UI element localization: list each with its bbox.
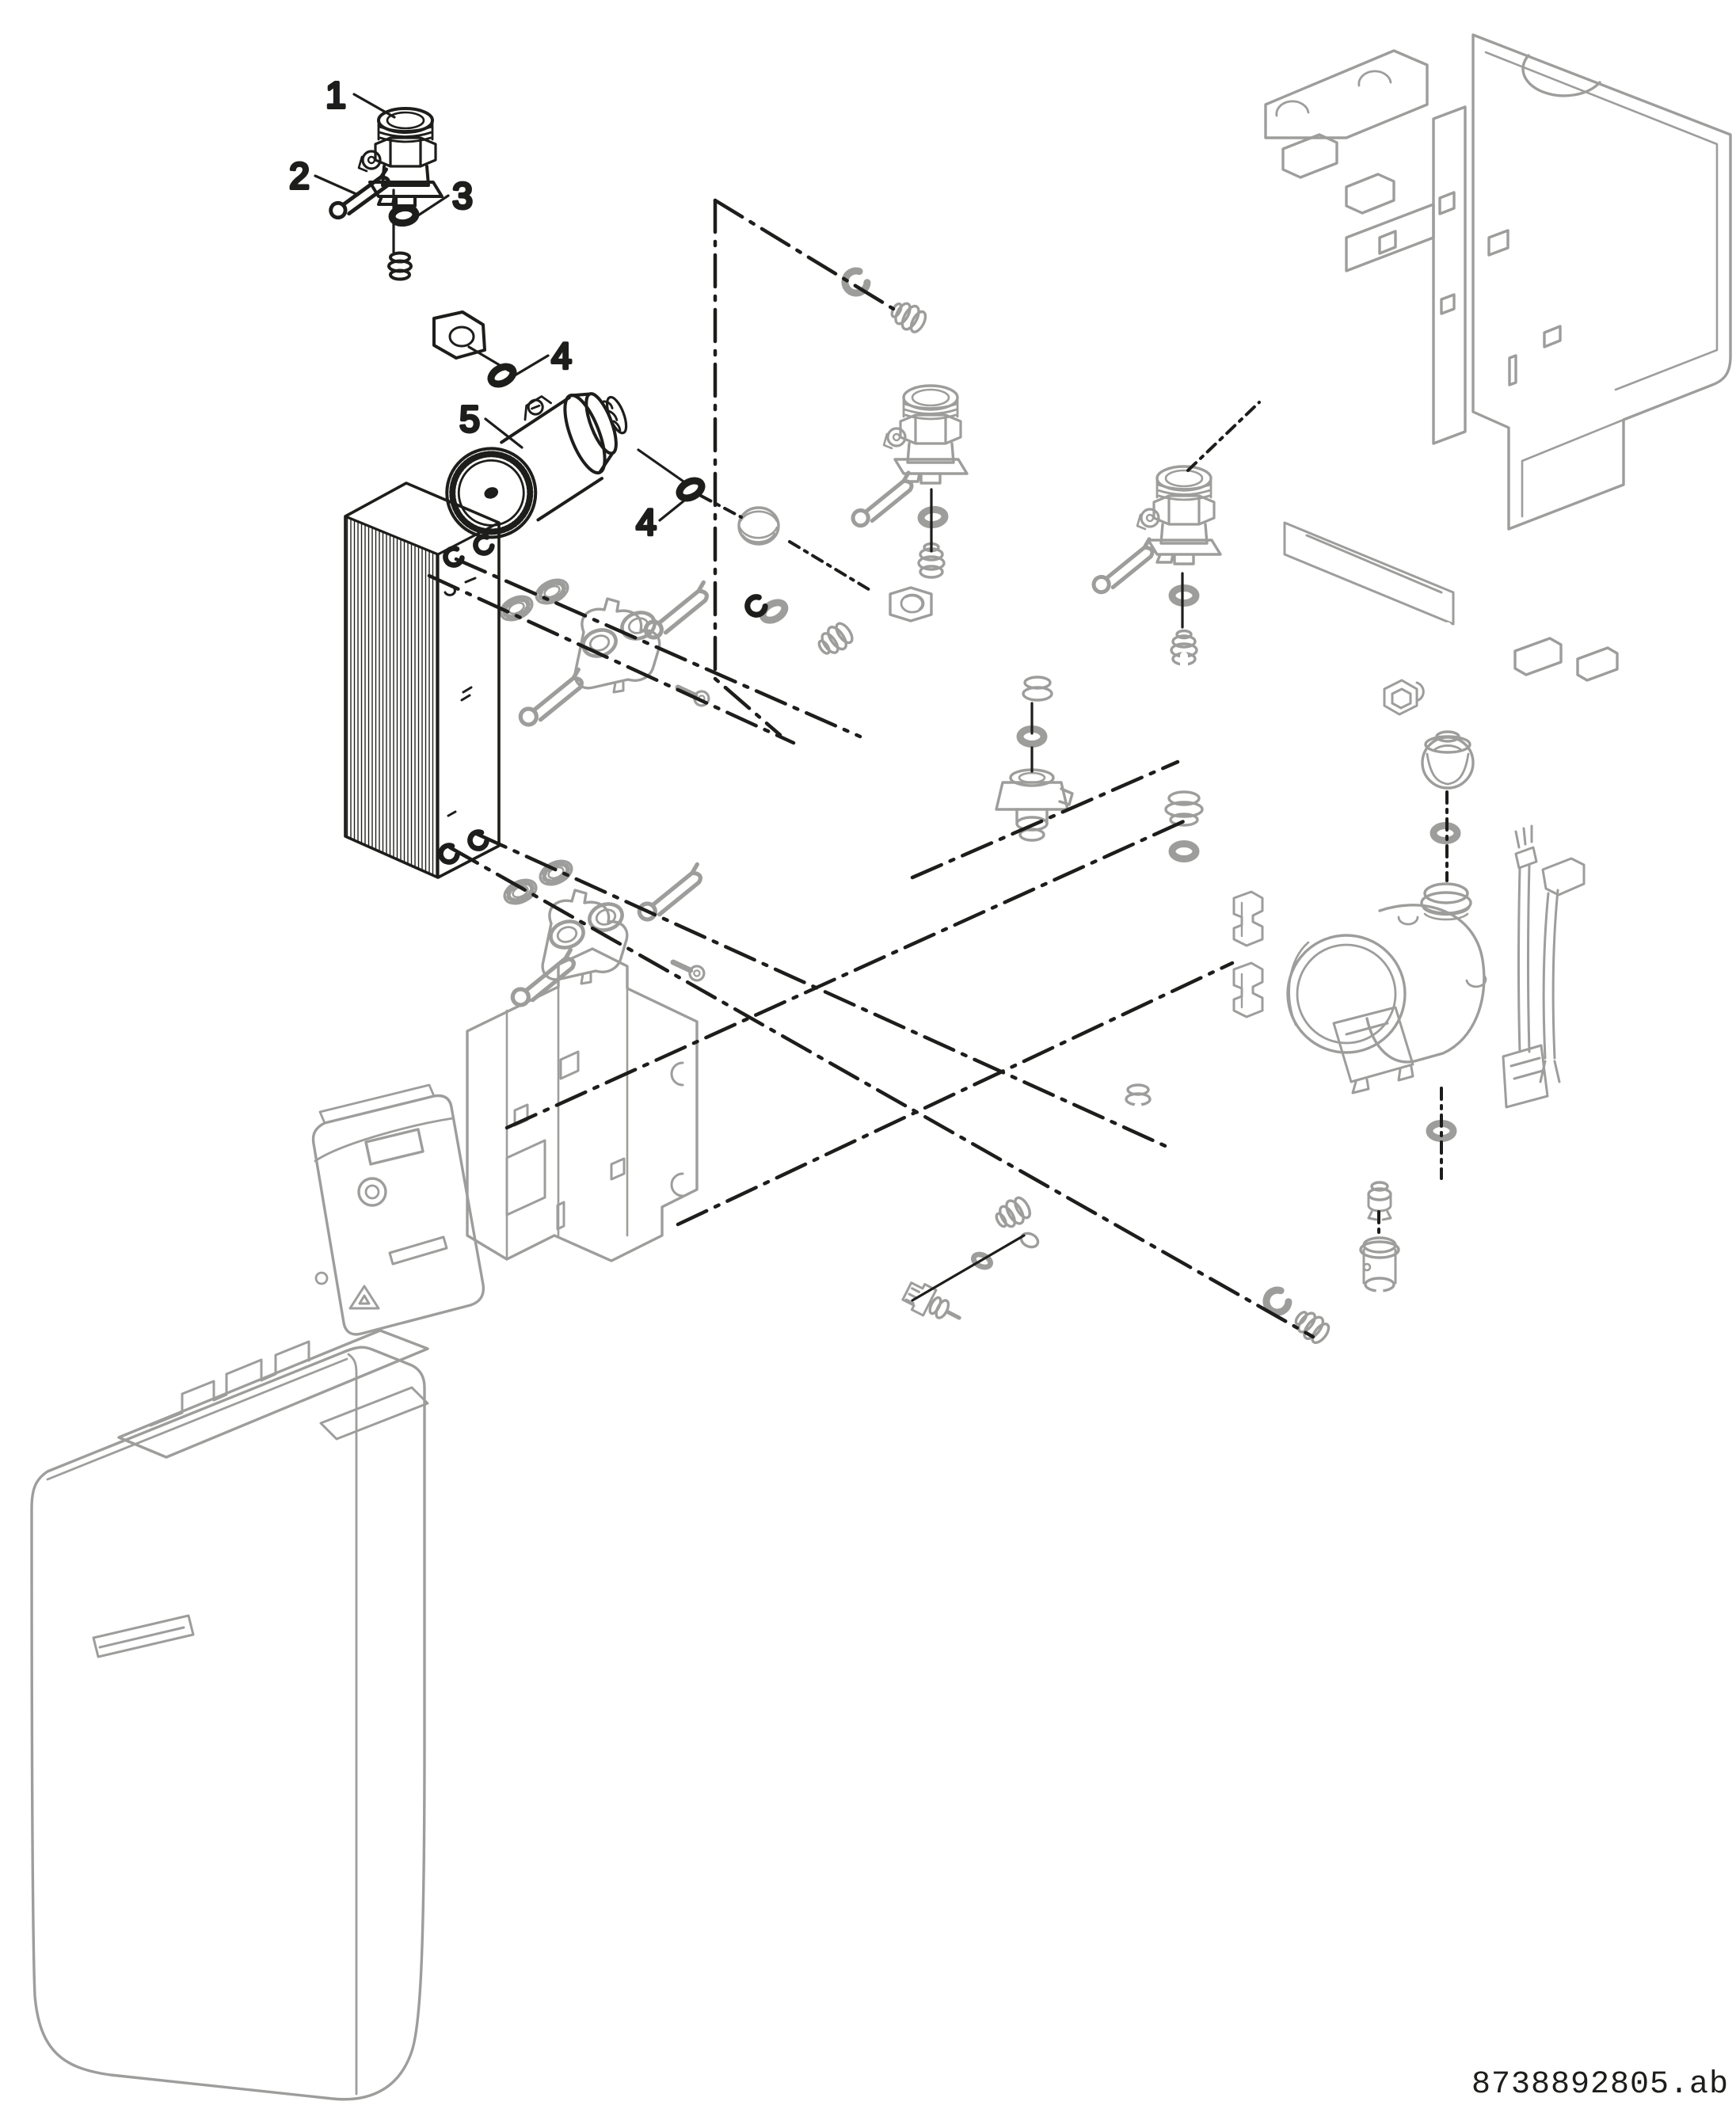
- service-valve-fitting: [359, 108, 442, 206]
- oring-valve-center: [920, 508, 946, 526]
- callout-1-label: 1: [325, 74, 346, 116]
- sealing-washer: [391, 207, 417, 225]
- callout-2-label: 2: [289, 155, 310, 196]
- control-unit: [314, 1085, 484, 1334]
- pipe-clip-b: [1234, 963, 1262, 1017]
- pipe-valve-center: [884, 386, 967, 483]
- hydraulic-manifold-upper: [575, 599, 660, 692]
- pump-cable-sensor: [1503, 826, 1548, 1107]
- callout-4a-label: 4: [551, 335, 572, 376]
- cable-retainer-clip: [1384, 680, 1423, 714]
- return-pipe-top: [888, 298, 1052, 700]
- oring-pipe-right: [1172, 844, 1196, 859]
- spring-clip-row2-right: [631, 864, 708, 921]
- spring-clip-row1-left: [512, 669, 589, 726]
- callout-4b-label: 4: [636, 501, 657, 542]
- doc-number: 8738892805.ab: [1471, 2067, 1729, 2103]
- temperature-sensor: [900, 1278, 965, 1330]
- assembly-centerlines: [429, 200, 1447, 1337]
- flange-adapter: [996, 770, 1072, 840]
- gasket-row1-b: [532, 575, 571, 607]
- hydraulic-manifold-lower: [542, 890, 627, 984]
- retaining-clip: [325, 169, 394, 219]
- pump-inlet-pipe: [1422, 626, 1473, 788]
- gasket-row2-b: [536, 856, 575, 889]
- dhw-pump-cartridge: [424, 371, 649, 550]
- plug-cap: [739, 508, 779, 544]
- diagram-page: 1 2 3 4 4 5 8738892805.ab: [0, 0, 1736, 2109]
- cring-small: [744, 595, 767, 619]
- cover-vent-strip: [119, 1330, 428, 1457]
- l-pipe-bottom: [992, 1085, 1150, 1277]
- callout-3-label: 3: [452, 175, 473, 216]
- elbow-pipe-top-left: [389, 253, 485, 359]
- exploded-parts-diagram: 1 2 3 4 4 5 8738892805.ab: [0, 0, 1736, 2109]
- callouts: 1 2 3 4 4 5: [289, 74, 688, 542]
- plate-heat-exchanger: [345, 483, 499, 877]
- circulation-pump: [1288, 884, 1486, 1093]
- wall-mounting-frame: [1266, 35, 1730, 680]
- clip-valve-right: [1086, 539, 1159, 594]
- kit-parts: 1 2 3 4 4 5: [289, 74, 1447, 1337]
- elbow-pipe-bottom-right: [1291, 1238, 1399, 1346]
- context-assembly: [32, 35, 1730, 2099]
- straight-pipe-right: [1166, 631, 1202, 826]
- mounting-plate: [467, 949, 697, 1261]
- screw-row2: [670, 956, 706, 983]
- pump-cable-power: [1540, 858, 1584, 1082]
- pipe-clip-a: [1234, 892, 1262, 946]
- oring-valve-right: [1172, 588, 1196, 603]
- o-ring-seal-upper: [488, 364, 516, 388]
- clip-valve-center: [845, 473, 919, 527]
- boiler-front-cover: [32, 1347, 424, 2099]
- union-nut-sbend: [814, 588, 934, 694]
- callout-5-label: 5: [459, 398, 480, 440]
- axis-line-oring4b: [638, 450, 686, 483]
